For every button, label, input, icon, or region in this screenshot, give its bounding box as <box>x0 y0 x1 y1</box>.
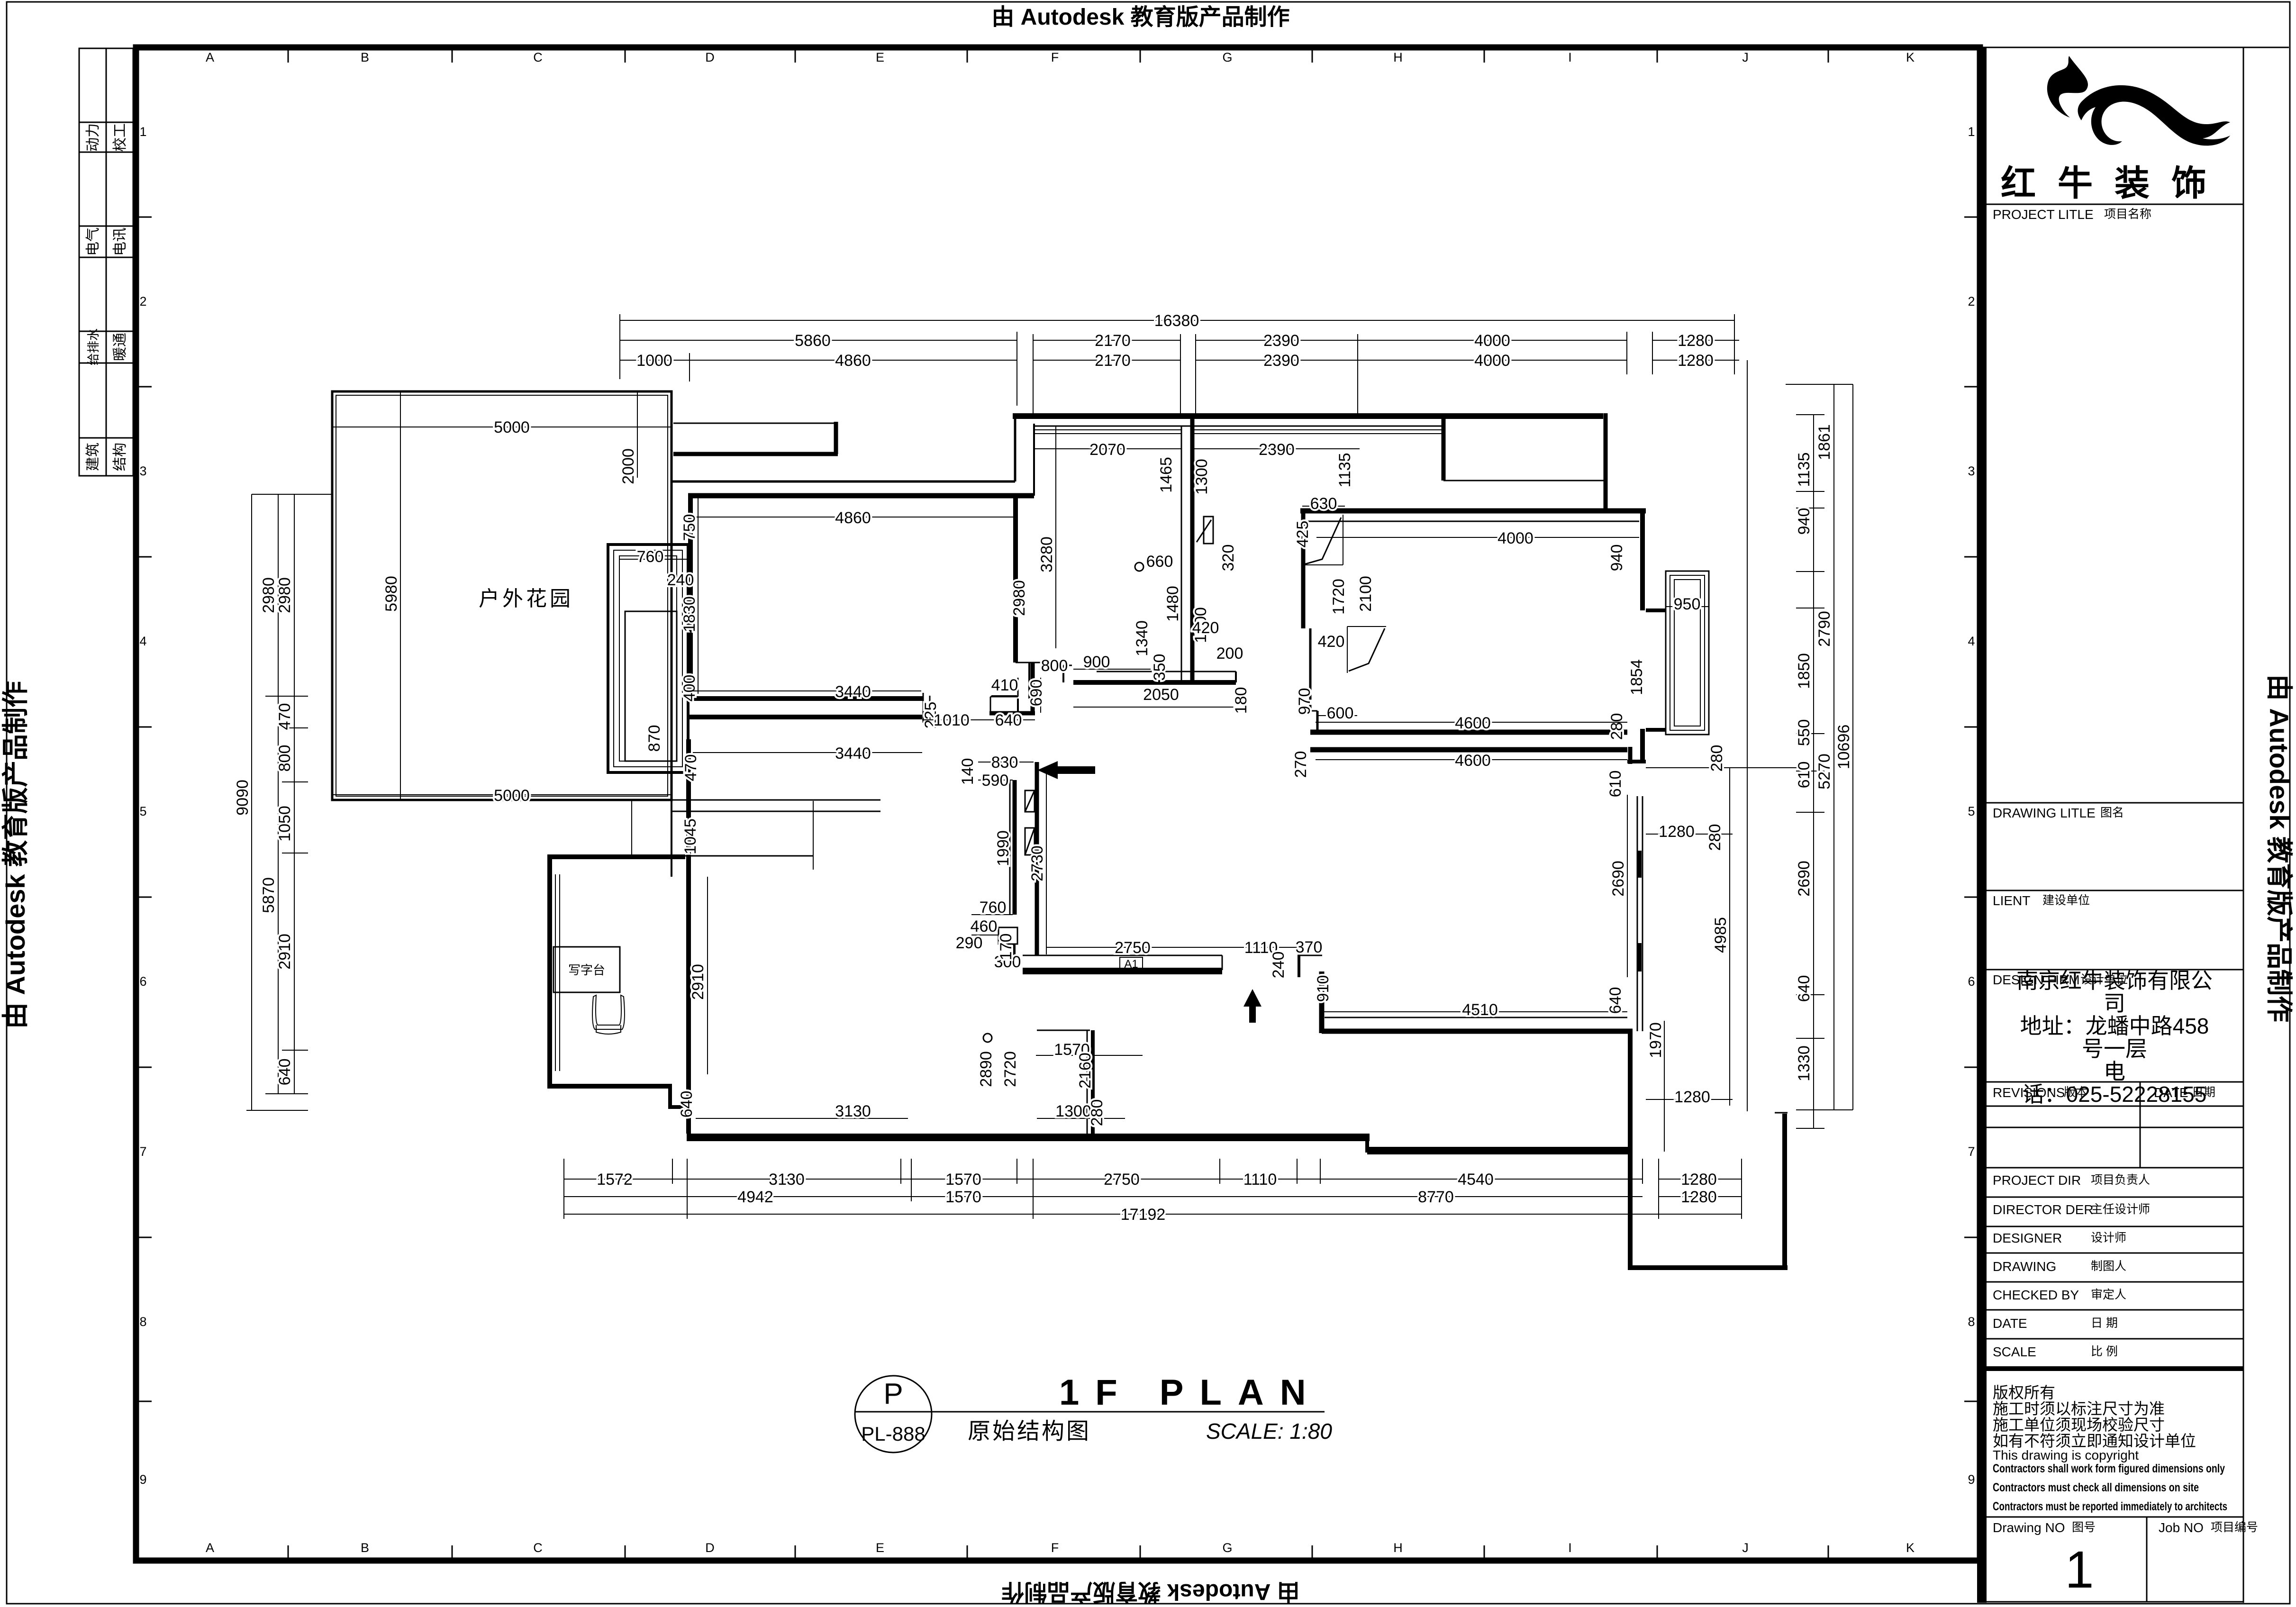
svg-text:DESIGNER: DESIGNER <box>1993 1231 2062 1245</box>
svg-text:I: I <box>1568 50 1572 64</box>
svg-text:690: 690 <box>1027 680 1045 707</box>
svg-text:420: 420 <box>1318 633 1345 651</box>
svg-text:Contractors must check all dim: Contractors must check all dimensions on… <box>1993 1481 2199 1494</box>
svg-text:2980: 2980 <box>1010 580 1028 616</box>
svg-text:1280: 1280 <box>1659 823 1695 841</box>
svg-text:1850: 1850 <box>1795 653 1813 689</box>
svg-text:6: 6 <box>139 974 146 989</box>
svg-text:暖通: 暖通 <box>112 333 128 361</box>
svg-text:2170: 2170 <box>1095 352 1131 370</box>
svg-text:2: 2 <box>139 294 146 309</box>
svg-text:17192: 17192 <box>1121 1206 1166 1224</box>
svg-text:8770: 8770 <box>1418 1188 1454 1206</box>
svg-text:4000: 4000 <box>1474 332 1510 350</box>
svg-text:460: 460 <box>971 917 998 935</box>
svg-text:Contractors must be reported i: Contractors must be reported immediately… <box>1993 1500 2227 1513</box>
svg-text:2890: 2890 <box>977 1051 995 1087</box>
svg-text:H: H <box>1393 50 1403 64</box>
svg-text:2390: 2390 <box>1263 352 1299 370</box>
svg-text:B: B <box>361 50 369 64</box>
svg-text:地址：龙蟠中路458: 地址：龙蟠中路458 <box>2020 1014 2209 1038</box>
svg-text:1330: 1330 <box>1795 1045 1813 1081</box>
svg-text:E: E <box>876 1541 884 1555</box>
svg-text:3280: 3280 <box>1038 536 1056 572</box>
svg-text:5000: 5000 <box>494 418 530 436</box>
svg-text:400: 400 <box>681 675 699 702</box>
svg-text:4600: 4600 <box>1455 752 1491 770</box>
svg-text:1280: 1280 <box>1674 1088 1710 1106</box>
svg-text:5870: 5870 <box>260 877 278 913</box>
svg-text:Contractors shall work form fi: Contractors shall work form figured dime… <box>1993 1462 2225 1475</box>
svg-text:1300: 1300 <box>1055 1102 1091 1120</box>
svg-text:170: 170 <box>997 934 1015 961</box>
svg-text:DRAWING: DRAWING <box>1993 1259 2056 1274</box>
svg-text:J: J <box>1742 50 1749 64</box>
svg-text:电气: 电气 <box>85 227 101 256</box>
svg-text:950: 950 <box>1674 595 1701 613</box>
svg-text:800: 800 <box>276 745 294 772</box>
svg-text:3440: 3440 <box>835 683 871 701</box>
svg-text:3: 3 <box>1968 464 1975 478</box>
svg-text:630: 630 <box>1310 495 1337 513</box>
svg-text:校工: 校工 <box>112 123 128 152</box>
svg-text:660: 660 <box>1146 553 1173 571</box>
svg-text:SCALE: 1:80: SCALE: 1:80 <box>1206 1419 1332 1444</box>
svg-text:5: 5 <box>139 804 146 818</box>
svg-text:7: 7 <box>1968 1144 1975 1159</box>
svg-text:1045: 1045 <box>681 818 699 854</box>
svg-text:830: 830 <box>991 754 1018 772</box>
svg-text:电讯: 电讯 <box>112 227 128 256</box>
svg-text:PROJECT DIR: PROJECT DIR <box>1993 1173 2081 1188</box>
svg-text:1570: 1570 <box>945 1188 981 1206</box>
svg-text:号一层: 号一层 <box>2082 1036 2147 1061</box>
svg-text:J: J <box>1742 1541 1749 1555</box>
svg-text:户外花园: 户外花园 <box>479 587 573 610</box>
svg-text:如有不符须立即通知设计单位: 如有不符须立即通知设计单位 <box>1993 1432 2196 1450</box>
svg-text:2750: 2750 <box>1104 1171 1140 1189</box>
svg-text:800: 800 <box>1041 657 1068 675</box>
svg-text:由 Autodesk 教育版产品制作: 由 Autodesk 教育版产品制作 <box>0 681 30 1029</box>
svg-text:1010: 1010 <box>934 711 970 729</box>
svg-text:2980: 2980 <box>276 577 294 613</box>
svg-text:I: I <box>1568 1541 1572 1555</box>
svg-text:4: 4 <box>1968 634 1975 648</box>
svg-text:5980: 5980 <box>382 576 400 612</box>
svg-text:470: 470 <box>276 703 294 730</box>
svg-text:350: 350 <box>1151 654 1169 681</box>
svg-text:日 期: 日 期 <box>2091 1316 2118 1330</box>
svg-text:3130: 3130 <box>769 1171 805 1189</box>
svg-text:LIENT: LIENT <box>1993 893 2030 908</box>
svg-text:4540: 4540 <box>1458 1171 1494 1189</box>
svg-text:结构: 结构 <box>112 443 128 471</box>
svg-text:280: 280 <box>1608 713 1626 740</box>
svg-text:2910: 2910 <box>276 934 294 970</box>
svg-text:320: 320 <box>1219 545 1237 572</box>
svg-text:图号: 图号 <box>2072 1521 2096 1534</box>
svg-text:1570: 1570 <box>945 1171 981 1189</box>
svg-text:2690: 2690 <box>1795 861 1813 897</box>
svg-text:H: H <box>1393 1541 1403 1555</box>
svg-text:写字台: 写字台 <box>568 963 605 977</box>
svg-text:P: P <box>883 1378 903 1410</box>
svg-text:1: 1 <box>139 125 146 139</box>
svg-text:140: 140 <box>959 758 977 785</box>
svg-text:2: 2 <box>1968 294 1975 309</box>
svg-text:6: 6 <box>1968 974 1975 989</box>
svg-text:425: 425 <box>1294 521 1312 548</box>
svg-text:4600: 4600 <box>1455 714 1491 732</box>
svg-text:870: 870 <box>645 725 663 752</box>
svg-text:610: 610 <box>1606 771 1624 798</box>
svg-text:4: 4 <box>139 634 146 648</box>
svg-text:7: 7 <box>139 1144 146 1159</box>
svg-text:施工时须以标注尺寸为准: 施工时须以标注尺寸为准 <box>1993 1400 2165 1417</box>
svg-text:5860: 5860 <box>795 332 831 350</box>
svg-text:2910: 2910 <box>689 964 707 1000</box>
svg-text:750: 750 <box>681 514 699 541</box>
svg-text:4000: 4000 <box>1474 352 1510 370</box>
svg-text:电: 电 <box>2104 1059 2125 1084</box>
svg-text:F: F <box>1051 1541 1059 1555</box>
svg-text:建设单位: 建设单位 <box>2042 894 2090 907</box>
svg-text:16380: 16380 <box>1154 312 1199 330</box>
svg-text:5000: 5000 <box>494 787 530 805</box>
svg-text:640: 640 <box>1606 987 1624 1014</box>
svg-text:2070: 2070 <box>1089 441 1125 459</box>
svg-text:版权所有: 版权所有 <box>1993 1384 2055 1401</box>
svg-text:2050: 2050 <box>1143 686 1179 704</box>
svg-text:1135: 1135 <box>1336 453 1354 487</box>
svg-text:970: 970 <box>1296 688 1314 715</box>
svg-text:4000: 4000 <box>1497 529 1534 547</box>
svg-text:1970: 1970 <box>1647 1022 1665 1058</box>
svg-text:640: 640 <box>1795 975 1813 1002</box>
svg-text:司: 司 <box>2104 991 2125 1016</box>
svg-text:K: K <box>1906 50 1915 64</box>
svg-text:图名: 图名 <box>2100 806 2124 819</box>
svg-text:2720: 2720 <box>1001 1051 1019 1087</box>
svg-text:1861: 1861 <box>1815 424 1833 460</box>
svg-text:420: 420 <box>1192 619 1219 637</box>
svg-text:DATE: DATE <box>1993 1316 2027 1331</box>
svg-text:8: 8 <box>1968 1315 1975 1329</box>
svg-text:270: 270 <box>1292 751 1310 778</box>
svg-text:2390: 2390 <box>1263 332 1299 350</box>
svg-text:话：025-52228155: 话：025-52228155 <box>2023 1082 2207 1107</box>
svg-text:410: 410 <box>991 676 1018 694</box>
svg-text:2730: 2730 <box>1028 845 1046 881</box>
svg-text:G: G <box>1222 1541 1232 1555</box>
svg-text:640: 640 <box>678 1091 696 1118</box>
svg-text:1: 1 <box>1968 125 1975 139</box>
svg-text:3: 3 <box>139 464 146 478</box>
svg-text:原始结构图: 原始结构图 <box>968 1419 1091 1444</box>
svg-text:910: 910 <box>1314 975 1332 1002</box>
svg-text:设计师: 设计师 <box>2091 1231 2126 1244</box>
svg-text:9: 9 <box>139 1472 146 1487</box>
svg-text:1990: 1990 <box>994 830 1012 866</box>
svg-text:4985: 4985 <box>1712 917 1730 953</box>
svg-text:由 Autodesk 教育版产品制作: 由 Autodesk 教育版产品制作 <box>2264 674 2294 1022</box>
svg-text:4860: 4860 <box>835 352 871 370</box>
svg-text:2790: 2790 <box>1815 611 1833 647</box>
svg-text:1465: 1465 <box>1157 457 1175 493</box>
svg-text:4860: 4860 <box>835 509 871 527</box>
svg-text:1720: 1720 <box>1330 579 1348 615</box>
svg-text:PROJECT LITLE: PROJECT LITLE <box>1993 207 2094 222</box>
svg-text:比 例: 比 例 <box>2091 1345 2118 1358</box>
svg-text:由 Autodesk 教育版产品制作: 由 Autodesk 教育版产品制作 <box>991 5 1289 30</box>
svg-text:Job NO: Job NO <box>2159 1520 2204 1535</box>
svg-text:D: D <box>705 1541 715 1555</box>
svg-text:建筑: 建筑 <box>85 443 101 471</box>
svg-text:施工单位须现场校验尺寸: 施工单位须现场校验尺寸 <box>1993 1416 2165 1434</box>
svg-text:200: 200 <box>1216 645 1243 663</box>
svg-text:SCALE: SCALE <box>1993 1344 2036 1359</box>
svg-text:PL-888: PL-888 <box>861 1423 925 1445</box>
svg-text:1280: 1280 <box>1678 332 1714 350</box>
svg-text:940: 940 <box>1608 545 1626 572</box>
svg-text:A: A <box>206 1541 214 1555</box>
svg-text:C: C <box>533 1541 543 1555</box>
svg-text:南京红牛装饰有限公: 南京红牛装饰有限公 <box>2016 968 2213 993</box>
svg-text:4942: 4942 <box>737 1188 773 1206</box>
svg-text:1480: 1480 <box>1164 586 1182 622</box>
svg-text:8: 8 <box>139 1315 146 1329</box>
svg-text:610: 610 <box>1795 762 1813 789</box>
svg-text:10696: 10696 <box>1835 725 1853 770</box>
svg-text:470: 470 <box>682 754 700 781</box>
svg-text:280: 280 <box>1088 1099 1106 1126</box>
svg-text:1: 1 <box>2065 1541 2094 1599</box>
svg-text:1135: 1135 <box>1795 452 1813 487</box>
svg-text:370: 370 <box>1296 938 1323 956</box>
svg-text:2170: 2170 <box>1095 332 1131 350</box>
svg-text:240: 240 <box>1270 952 1288 979</box>
svg-text:3130: 3130 <box>835 1102 871 1120</box>
svg-text:This drawing is copyright: This drawing is copyright <box>1993 1448 2139 1462</box>
svg-text:5270: 5270 <box>1815 754 1833 790</box>
svg-text:2100: 2100 <box>1357 576 1375 612</box>
svg-text:640: 640 <box>276 1059 294 1086</box>
svg-text:9090: 9090 <box>234 780 252 816</box>
svg-text:1000: 1000 <box>636 352 672 370</box>
svg-text:940: 940 <box>1795 508 1813 535</box>
svg-text:1110: 1110 <box>1243 1171 1277 1189</box>
svg-text:9: 9 <box>1968 1472 1975 1487</box>
svg-text:1280: 1280 <box>1678 352 1714 370</box>
svg-text:G: G <box>1222 50 1232 64</box>
svg-text:1F PLAN: 1F PLAN <box>1059 1372 1322 1413</box>
svg-text:900: 900 <box>1083 653 1110 671</box>
svg-text:A1: A1 <box>1124 958 1138 971</box>
svg-text:1830: 1830 <box>681 596 699 632</box>
svg-text:3440: 3440 <box>835 744 871 763</box>
svg-text:DRAWING LITLE: DRAWING LITLE <box>1993 806 2096 820</box>
svg-text:550: 550 <box>1795 719 1813 746</box>
svg-text:2750: 2750 <box>1115 939 1151 957</box>
svg-text:280: 280 <box>1708 745 1726 772</box>
svg-text:E: E <box>876 50 884 64</box>
svg-text:主任设计师: 主任设计师 <box>2091 1203 2150 1216</box>
svg-text:180: 180 <box>1232 687 1250 714</box>
svg-text:D: D <box>705 50 715 64</box>
svg-text:2000: 2000 <box>619 448 637 484</box>
svg-text:项目负责人: 项目负责人 <box>2091 1173 2150 1187</box>
svg-text:2980: 2980 <box>260 577 278 613</box>
svg-text:A: A <box>206 50 214 64</box>
svg-text:1280: 1280 <box>1681 1188 1717 1206</box>
svg-text:K: K <box>1906 1541 1915 1555</box>
svg-text:动力: 动力 <box>85 123 101 152</box>
svg-text:600: 600 <box>1327 704 1354 722</box>
svg-text:红牛装饰: 红牛装饰 <box>2001 163 2228 203</box>
svg-text:DIRECTOR DER: DIRECTOR DER <box>1993 1202 2094 1217</box>
svg-text:240: 240 <box>667 571 694 589</box>
svg-text:280: 280 <box>1706 824 1724 851</box>
svg-text:由 Autodesk 教育版产品制作: 由 Autodesk 教育版产品制作 <box>1001 1579 1299 1604</box>
svg-text:1280: 1280 <box>1681 1171 1717 1189</box>
svg-text:2690: 2690 <box>1609 861 1627 897</box>
svg-text:给排水: 给排水 <box>86 328 100 365</box>
svg-text:640: 640 <box>995 711 1022 729</box>
svg-text:760: 760 <box>980 899 1007 917</box>
svg-text:1050: 1050 <box>276 806 294 842</box>
svg-text:590: 590 <box>982 772 1009 790</box>
svg-text:B: B <box>361 1541 369 1555</box>
svg-text:F: F <box>1051 50 1059 64</box>
svg-text:290: 290 <box>956 934 983 952</box>
svg-text:1854: 1854 <box>1628 659 1646 695</box>
svg-text:审定人: 审定人 <box>2091 1288 2126 1301</box>
svg-text:760: 760 <box>637 548 664 566</box>
svg-text:项目名称: 项目名称 <box>2104 208 2151 221</box>
svg-text:制图人: 制图人 <box>2091 1260 2126 1273</box>
svg-text:4510: 4510 <box>1462 1001 1498 1019</box>
svg-text:C: C <box>533 50 543 64</box>
svg-text:1300: 1300 <box>1193 459 1211 495</box>
svg-text:1340: 1340 <box>1133 620 1151 656</box>
svg-text:2160: 2160 <box>1076 1053 1094 1089</box>
svg-text:Drawing NO: Drawing NO <box>1993 1520 2065 1535</box>
svg-text:CHECKED BY: CHECKED BY <box>1993 1288 2079 1302</box>
svg-text:2390: 2390 <box>1259 441 1295 459</box>
svg-text:5: 5 <box>1968 804 1975 818</box>
svg-text:项目编号: 项目编号 <box>2211 1521 2258 1534</box>
svg-text:1572: 1572 <box>597 1171 633 1189</box>
